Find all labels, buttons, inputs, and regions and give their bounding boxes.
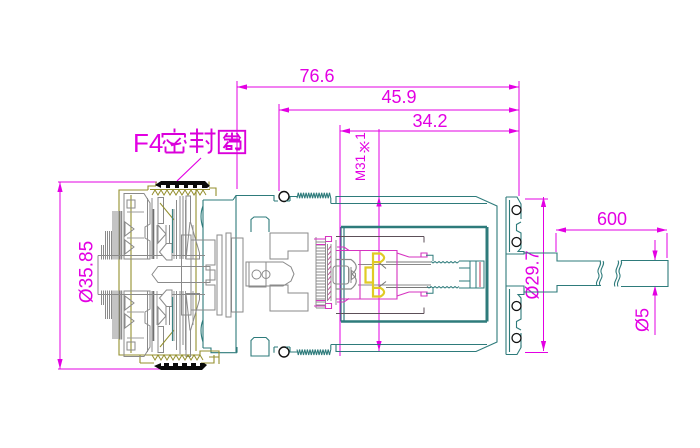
svg-text:600: 600 [597,209,627,229]
svg-text:M31: M31 [353,155,368,181]
svg-text:34.2: 34.2 [412,111,447,131]
svg-text:1: 1 [353,132,368,140]
svg-text:76.6: 76.6 [299,66,334,86]
svg-text:45.9: 45.9 [381,87,416,107]
svg-text:Ø35.85: Ø35.85 [77,241,98,303]
svg-text:Ø5: Ø5 [633,308,653,332]
svg-text:F4: F4 [133,128,163,158]
